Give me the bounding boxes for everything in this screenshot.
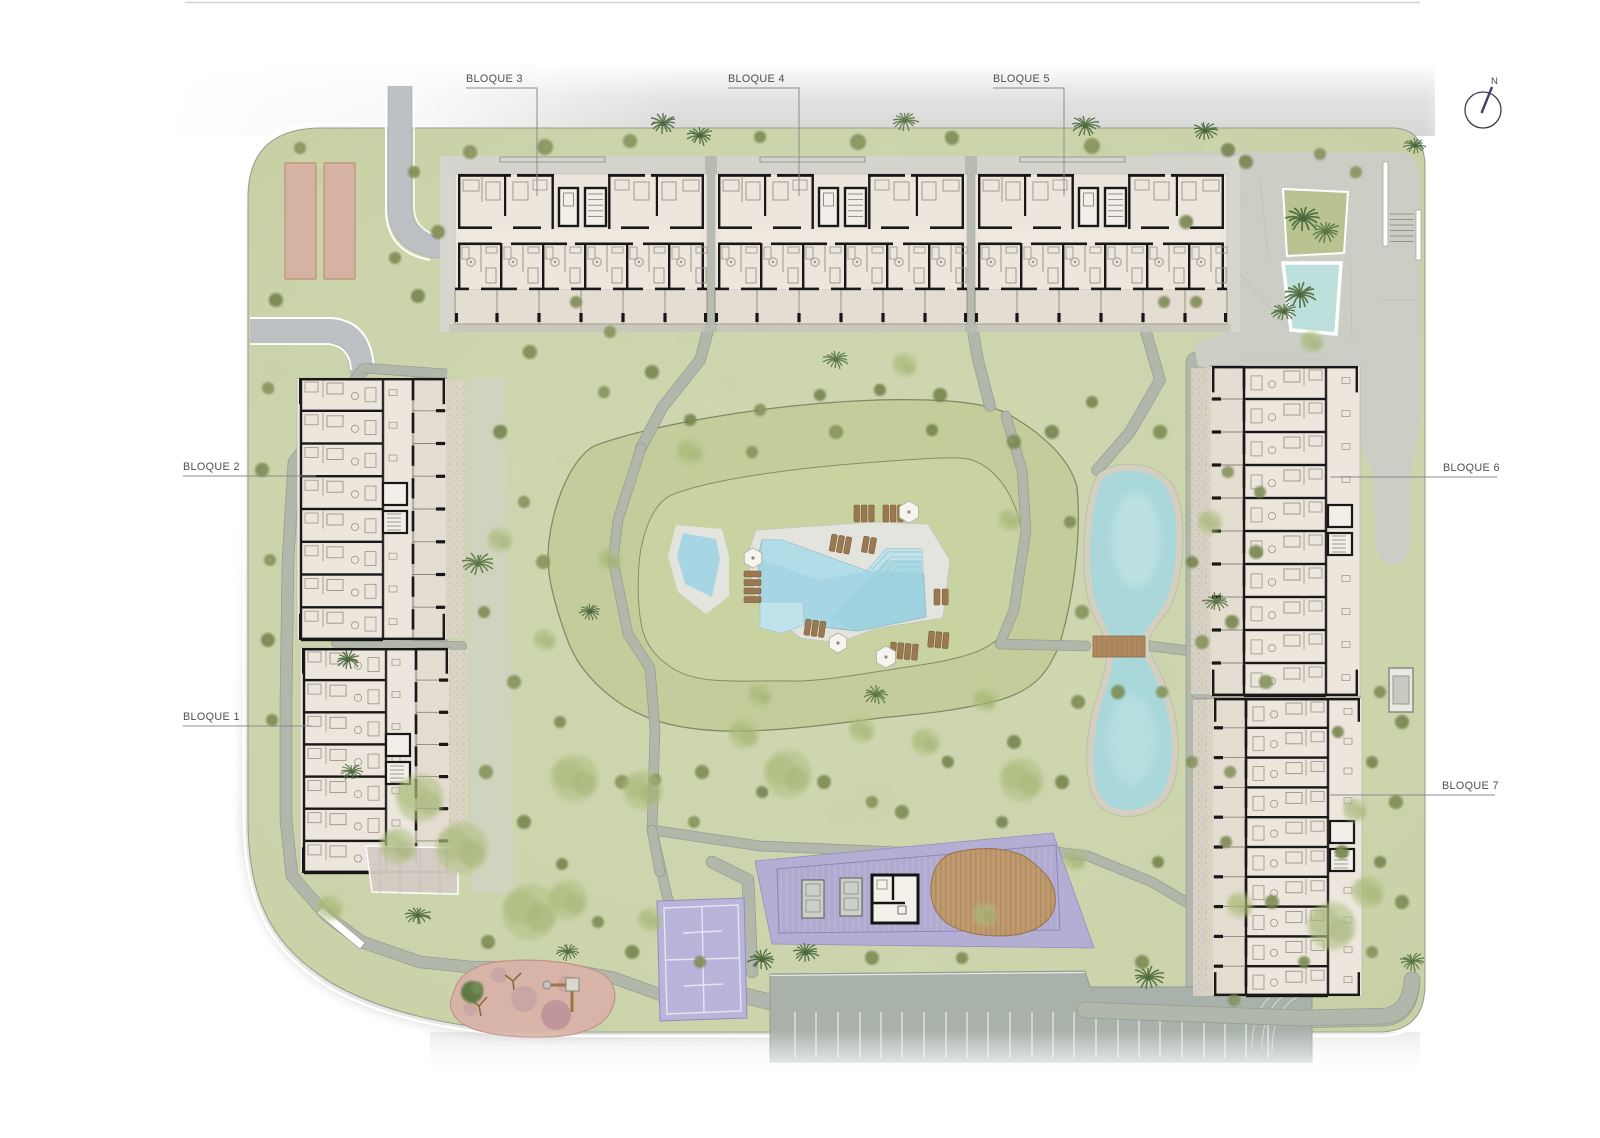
svg-text:BLOQUE 6: BLOQUE 6 bbox=[1443, 462, 1500, 474]
svg-text:N: N bbox=[1491, 76, 1498, 87]
svg-text:BLOQUE 2: BLOQUE 2 bbox=[183, 461, 240, 473]
svg-text:BLOQUE 3: BLOQUE 3 bbox=[466, 73, 523, 85]
svg-text:BLOQUE 4: BLOQUE 4 bbox=[728, 73, 785, 85]
svg-text:BLOQUE 7: BLOQUE 7 bbox=[1442, 780, 1499, 792]
svg-text:BLOQUE 5: BLOQUE 5 bbox=[993, 73, 1050, 85]
svg-text:BLOQUE 1: BLOQUE 1 bbox=[183, 711, 240, 723]
